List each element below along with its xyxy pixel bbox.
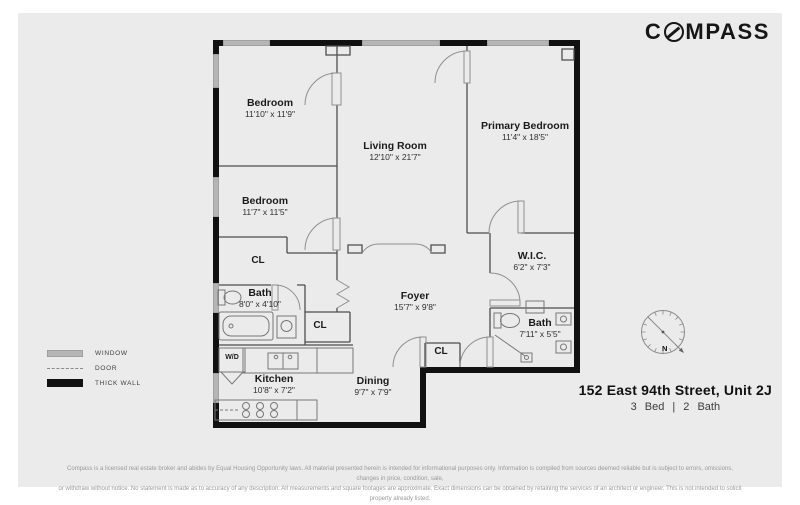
room-label-bedroom-2: Bedroom 11'7" x 11'5" bbox=[242, 195, 288, 218]
room-label-bedroom-1: Bedroom 11'10" x 11'9" bbox=[245, 97, 295, 120]
washer-dryer-label: W/D bbox=[225, 354, 239, 361]
logo-text-mpass: MPASS bbox=[685, 19, 770, 45]
room-label-primary-bedroom: Primary Bedroom 11'4" x 18'5" bbox=[481, 120, 569, 143]
room-label-wic: W.I.C. 6'2" x 7'3" bbox=[513, 250, 550, 273]
window-swatch-icon bbox=[47, 350, 83, 357]
room-dims: 8'0" x 4'10" bbox=[239, 300, 281, 310]
listing-specs: 3 Bed | 2 Bath bbox=[579, 401, 772, 413]
compass-rose-icon: N bbox=[637, 306, 689, 358]
disclaimer-line-1: Compass is a licensed real estate broker… bbox=[58, 465, 742, 485]
legend-row-window: WINDOW bbox=[47, 349, 141, 357]
room-name: Living Room bbox=[363, 140, 427, 152]
floorplan-sheet: C MPASS bbox=[18, 13, 782, 487]
floor-plan: Bedroom 11'10" x 11'9" Bedroom 11'7" x 1… bbox=[213, 40, 580, 428]
room-name: Kitchen bbox=[253, 373, 295, 385]
room-label-bath-right: Bath 7'11" x 5'5" bbox=[519, 317, 560, 340]
room-name: W.I.C. bbox=[513, 250, 550, 262]
closet-label: CL bbox=[434, 346, 447, 357]
room-name: Bath bbox=[519, 317, 560, 329]
room-dims: 11'4" x 18'5" bbox=[481, 133, 569, 143]
room-dims: 6'2" x 7'3" bbox=[513, 263, 550, 273]
compass-logo: C MPASS bbox=[645, 19, 770, 45]
room-name: Bedroom bbox=[245, 97, 295, 109]
disclaimer: Compass is a licensed real estate broker… bbox=[58, 465, 742, 505]
door-swatch-icon bbox=[47, 368, 83, 369]
legend-label: DOOR bbox=[95, 365, 117, 372]
legend-label: WINDOW bbox=[95, 350, 128, 357]
room-dims: 9'7" x 7'9" bbox=[354, 388, 391, 398]
room-name: Bath bbox=[239, 287, 281, 299]
compass-logo-o-icon bbox=[664, 22, 684, 42]
thick-wall-swatch-icon bbox=[47, 379, 83, 387]
logo-text-c: C bbox=[645, 19, 663, 45]
legend: WINDOW DOOR THICK WALL bbox=[47, 349, 141, 394]
legend-label: THICK WALL bbox=[95, 380, 141, 387]
legend-row-thick-wall: THICK WALL bbox=[47, 379, 141, 387]
closet-label: CL bbox=[313, 320, 326, 331]
room-label-kitchen: Kitchen 10'8" x 7'2" bbox=[253, 373, 295, 396]
legend-row-door: DOOR bbox=[47, 364, 141, 372]
doors-and-arcs bbox=[272, 51, 524, 367]
room-name: Primary Bedroom bbox=[481, 120, 569, 132]
room-name: Foyer bbox=[394, 290, 436, 302]
room-label-living-room: Living Room 12'10" x 21'7" bbox=[363, 140, 427, 163]
room-dims: 11'10" x 11'9" bbox=[245, 110, 295, 120]
room-name: Dining bbox=[354, 375, 391, 387]
compass-north-label: N bbox=[662, 344, 667, 353]
listing-address: 152 East 94th Street, Unit 2J bbox=[579, 382, 772, 398]
listing-info: 152 East 94th Street, Unit 2J 3 Bed | 2 … bbox=[579, 382, 772, 413]
room-label-bath-left: Bath 8'0" x 4'10" bbox=[239, 287, 281, 310]
closet-label: CL bbox=[251, 255, 264, 266]
room-name: Bedroom bbox=[242, 195, 288, 207]
room-label-dining: Dining 9'7" x 7'9" bbox=[354, 375, 391, 398]
disclaimer-line-2: or withdraw without notice. No statement… bbox=[58, 485, 742, 505]
room-dims: 12'10" x 21'7" bbox=[363, 153, 427, 163]
room-dims: 7'11" x 5'5" bbox=[519, 330, 560, 340]
room-dims: 15'7" x 9'8" bbox=[394, 303, 436, 313]
room-dims: 11'7" x 11'5" bbox=[242, 208, 288, 218]
room-dims: 10'8" x 7'2" bbox=[253, 386, 295, 396]
room-label-foyer: Foyer 15'7" x 9'8" bbox=[394, 290, 436, 313]
